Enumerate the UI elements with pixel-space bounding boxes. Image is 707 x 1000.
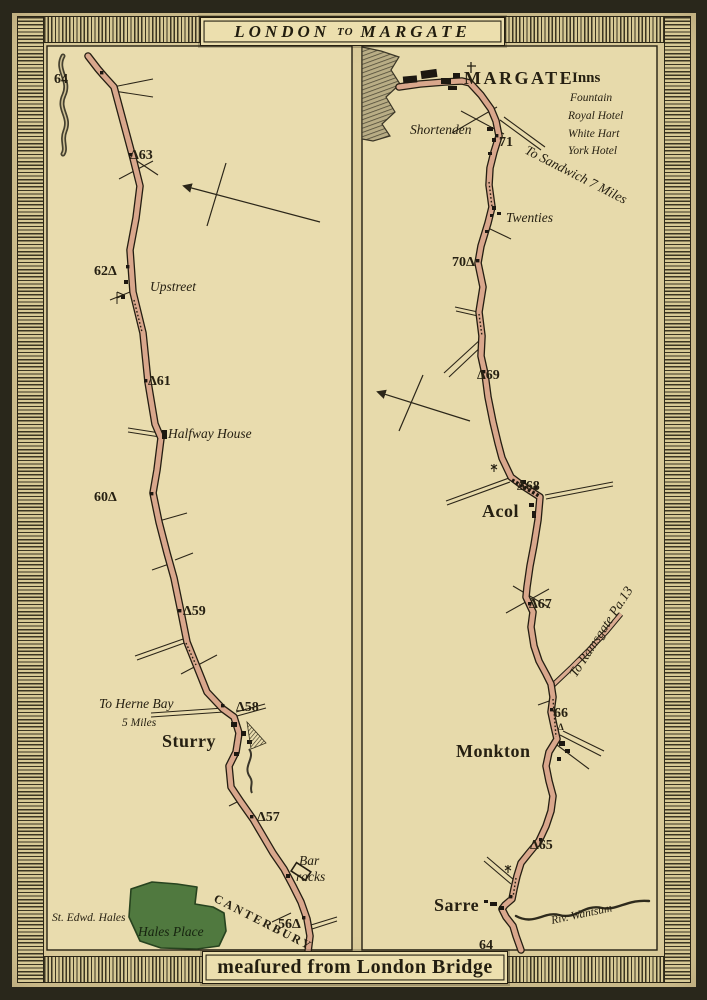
label-mile-69: Δ69	[477, 368, 500, 383]
label-mile-70: 70Δ	[452, 255, 475, 270]
label-acol: Acol	[482, 501, 519, 521]
label-upstreet: Upstreet	[150, 279, 197, 294]
label-mile-66-triangle: Δ	[558, 722, 564, 732]
label-inns-title: Inns	[572, 70, 601, 86]
label-mile-57: Δ57	[257, 810, 280, 825]
footer-banner: meaſured from London Bridge	[202, 951, 508, 984]
right-map-panel	[362, 46, 657, 950]
label-st-edw-hales: St. Edwd. Hales	[52, 912, 126, 924]
label-to-herne-bay: To Herne Bay	[99, 696, 174, 711]
title-to: TO	[337, 26, 353, 38]
label-hales-place: Hales Place	[137, 924, 204, 939]
label-mile-61: Δ61	[148, 374, 171, 389]
label-mile-63: Δ63	[130, 148, 153, 163]
label-inn-fountain: Fountain	[569, 92, 612, 104]
label-twenties: Twenties	[506, 210, 553, 225]
title-london: LONDON	[234, 22, 330, 42]
footer-text: meaſured from London Bridge	[217, 956, 493, 979]
left-map-panel	[47, 46, 352, 950]
title-banner: LONDON TO MARGATE	[200, 17, 505, 46]
title-margate: MARGATE	[361, 22, 471, 42]
label-mile-60: 60Δ	[94, 490, 117, 505]
label-sarre: Sarre	[434, 895, 479, 915]
label-sturry: Sturry	[162, 731, 216, 751]
label-monkton: Monkton	[456, 741, 531, 761]
label-barracks-2: racks	[296, 869, 325, 884]
map-canvas: 64 Δ63 62Δ Upstreet Δ61 Halfway House 60…	[0, 0, 707, 1000]
label-shortenden: Shortenden	[410, 122, 472, 137]
label-mile-66: 66	[554, 706, 568, 721]
label-barracks-1: Bar	[299, 853, 320, 868]
label-inn-white-hart: White Hart	[568, 128, 620, 140]
label-mile-56: 56Δ	[278, 917, 301, 932]
label-mile-65: Δ65	[530, 838, 553, 853]
label-mile-59: Δ59	[183, 604, 206, 619]
label-herne-miles: 5 Miles	[122, 717, 157, 729]
label-mile-71: 71	[499, 135, 513, 150]
label-margate: MARGATE	[464, 68, 574, 88]
label-mile-64: 64	[54, 72, 68, 87]
label-inn-royal-hotel: Royal Hotel	[567, 110, 623, 122]
label-inn-york-hotel: York Hotel	[568, 145, 617, 157]
label-mile-67: Δ67	[529, 597, 552, 612]
label-mile-68: Δ68	[517, 479, 540, 494]
label-mile-58: Δ58	[236, 700, 259, 715]
map-sheet: 64 Δ63 62Δ Upstreet Δ61 Halfway House 60…	[0, 0, 707, 1000]
label-halfway-house: Halfway House	[167, 426, 252, 441]
label-mile-62: 62Δ	[94, 264, 117, 279]
